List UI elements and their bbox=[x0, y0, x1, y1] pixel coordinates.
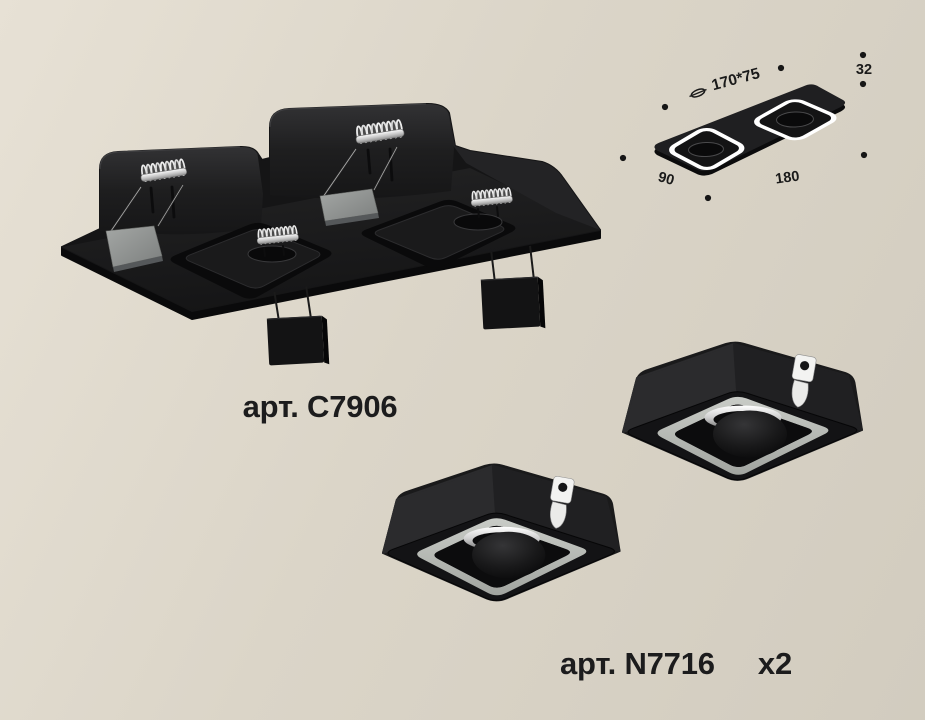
dimension-diagram: 170*75 32 90 180 bbox=[620, 52, 872, 201]
lamp-hole-left bbox=[248, 246, 296, 262]
article-label-module-text: арт. N7716 bbox=[560, 646, 715, 682]
quantity-label: x2 bbox=[758, 646, 792, 682]
module-render-left bbox=[383, 464, 620, 600]
render-canvas: 170*75 32 90 180 bbox=[0, 0, 925, 720]
article-label-module: арт. N7716 x2 bbox=[560, 646, 792, 682]
height-dimension-label: 32 bbox=[856, 62, 872, 78]
width-dimension-label: 90 bbox=[656, 169, 676, 189]
frame-render bbox=[62, 104, 600, 367]
frame-housing-right bbox=[270, 104, 454, 199]
product-collage: 170*75 32 90 180 арт. C7906 арт. N7716 x… bbox=[0, 0, 925, 720]
article-label-frame: арт. C7906 bbox=[170, 389, 470, 425]
module-render-right bbox=[623, 343, 862, 480]
cutout-dimension-label: 170*75 bbox=[710, 65, 762, 94]
diameter-icon bbox=[690, 87, 707, 98]
length-dimension-label: 180 bbox=[774, 168, 800, 187]
